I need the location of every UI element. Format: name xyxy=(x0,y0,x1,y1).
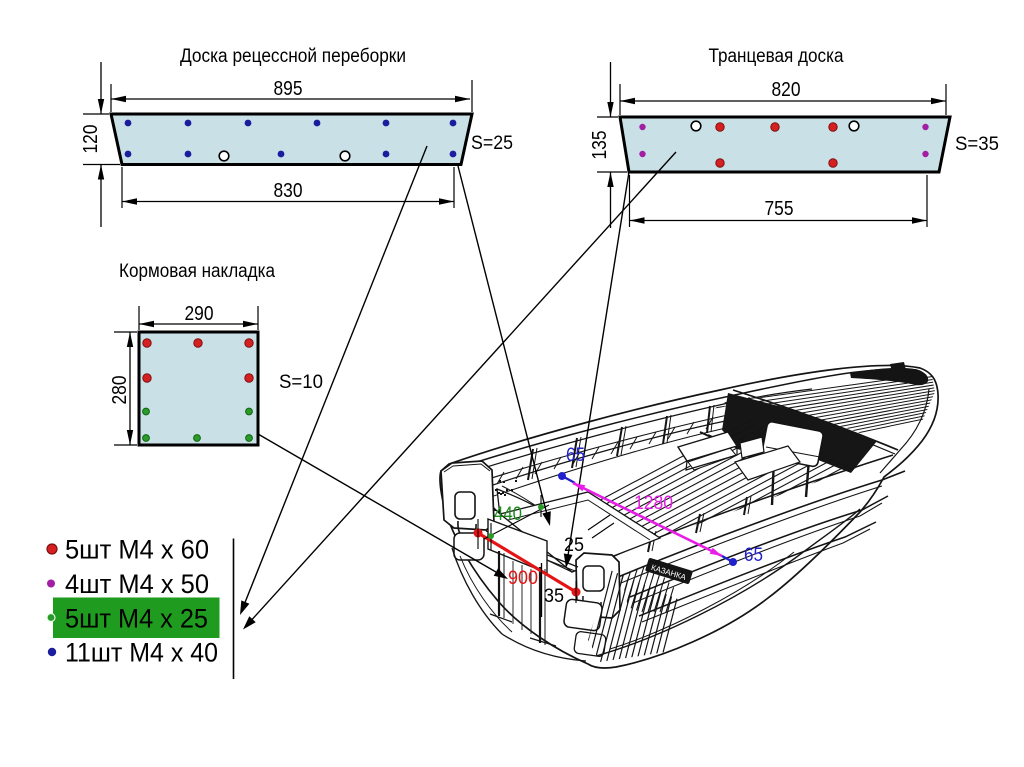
svg-text:35: 35 xyxy=(544,586,564,607)
svg-text:290: 290 xyxy=(185,303,214,325)
svg-text:Кормовая накладка: Кормовая накладка xyxy=(119,261,275,282)
svg-text:65: 65 xyxy=(744,545,763,566)
svg-text:Доска рецессной переборки: Доска рецессной переборки xyxy=(180,46,406,67)
svg-text:S=10: S=10 xyxy=(279,372,323,393)
svg-text:S=35: S=35 xyxy=(955,134,999,155)
svg-text:135: 135 xyxy=(589,131,611,160)
svg-text:830: 830 xyxy=(274,180,303,202)
svg-text:1280: 1280 xyxy=(634,493,673,514)
svg-text:820: 820 xyxy=(772,79,801,101)
svg-text:900: 900 xyxy=(508,568,538,589)
svg-text:120: 120 xyxy=(80,125,102,154)
svg-text:280: 280 xyxy=(109,376,131,405)
svg-text:S=25: S=25 xyxy=(471,133,513,154)
svg-text:Транцевая доска: Транцевая доска xyxy=(709,46,844,67)
svg-text:25: 25 xyxy=(564,535,584,556)
svg-text:895: 895 xyxy=(274,78,303,100)
svg-text:5шт М4 х 60: 5шт М4 х 60 xyxy=(65,535,209,565)
svg-text:4шт М4 х 50: 4шт М4 х 50 xyxy=(65,569,209,599)
svg-text:65: 65 xyxy=(566,445,585,466)
svg-text:11шт М4 х 40: 11шт М4 х 40 xyxy=(65,638,218,668)
svg-text:440: 440 xyxy=(494,504,522,525)
svg-text:755: 755 xyxy=(765,198,794,220)
svg-text:5шт М4 х 25: 5шт М4 х 25 xyxy=(65,604,208,634)
